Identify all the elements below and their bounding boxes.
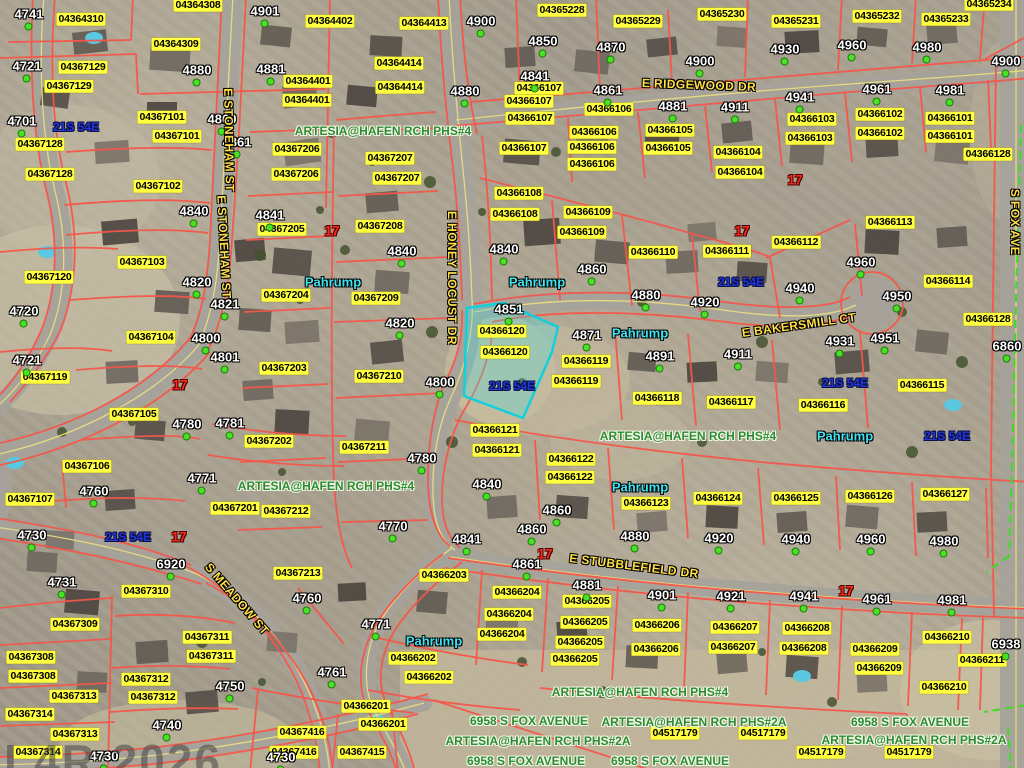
parcel-id-label[interactable]: 04366109: [557, 226, 606, 239]
parcel-id-label[interactable]: 04367211: [340, 441, 389, 454]
address-label: 4881: [659, 100, 688, 113]
address-label: 4950: [883, 290, 912, 303]
parcel-id-label[interactable]: 04367129: [44, 80, 93, 93]
address-label: 4840: [388, 245, 417, 258]
address-label: 6860: [993, 340, 1022, 353]
address-label: 4870: [597, 41, 626, 54]
address-label: 4980: [930, 535, 959, 548]
parcel-id-label[interactable]: 04366121: [470, 424, 519, 437]
parcel-id-label[interactable]: 04367102: [133, 180, 182, 193]
address-label: 4780: [408, 452, 437, 465]
address-label: 4781: [216, 417, 245, 430]
address-label: 4720: [10, 305, 39, 318]
address-label: 4880: [451, 85, 480, 98]
section-number-label: 17: [734, 224, 749, 238]
parcel-id-label[interactable]: 04366201: [341, 700, 390, 713]
address-label: 4760: [80, 485, 109, 498]
section-number-label: 17: [537, 547, 552, 561]
address-label: 4961: [863, 593, 892, 606]
address-label: 4860: [518, 523, 547, 536]
subdivision-label: 6958 S FOX AVENUE: [851, 716, 969, 728]
address-label: 4900: [467, 15, 496, 28]
parcel-id-label[interactable]: 04367128: [25, 168, 74, 181]
parcel-id-label[interactable]: 04366206: [631, 643, 680, 656]
parcel-id-label[interactable]: 04367416: [277, 726, 326, 739]
parcel-id-label[interactable]: 04367309: [50, 618, 99, 631]
address-label: 4820: [183, 276, 212, 289]
address-label: 4721: [13, 60, 42, 73]
address-label: 4750: [216, 680, 245, 693]
parcel-id-label[interactable]: 04365233: [921, 13, 970, 26]
address-label: 4730: [18, 529, 47, 542]
parcel-id-label[interactable]: 04364310: [56, 13, 105, 26]
address-label: 4920: [691, 296, 720, 309]
township-range-label: 21S 54E: [924, 430, 970, 442]
address-label: 4771: [362, 618, 391, 631]
parcel-id-label[interactable]: 04366107: [504, 95, 553, 108]
address-label: 4760: [293, 592, 322, 605]
parcel-id-label[interactable]: 04517179: [884, 746, 933, 759]
address-label: 4880: [621, 530, 650, 543]
address-label: 4911: [724, 348, 752, 361]
subdivision-label: ARTESIA@HAFEN RCH PHS#4: [600, 430, 776, 442]
address-label: 4920: [705, 532, 734, 545]
parcel-id-label[interactable]: 04367208: [355, 220, 404, 233]
address-label: 4981: [936, 84, 965, 97]
address-label: 4800: [426, 376, 455, 389]
parcel-id-label[interactable]: 04365231: [771, 15, 820, 28]
street-name-label: E STONEHAM ST: [222, 88, 236, 192]
parcel-id-label[interactable]: 04364401: [283, 75, 332, 88]
parcel-id-label[interactable]: 04365232: [852, 10, 901, 23]
parcel-id-label[interactable]: 04366124: [693, 492, 742, 505]
address-label: 4881: [257, 63, 286, 76]
parcel-id-label[interactable]: 04366202: [388, 652, 437, 665]
parcel-id-label[interactable]: 04366101: [925, 130, 974, 143]
section-number-label: 17: [171, 530, 186, 544]
address-label: 4840: [490, 243, 519, 256]
parcel-id-label[interactable]: 04367203: [259, 362, 308, 375]
subdivision-label: ARTESIA@HAFEN RCH PHS#4: [295, 125, 471, 137]
address-label: 4930: [771, 43, 800, 56]
parcel-id-label[interactable]: 04517179: [796, 746, 845, 759]
parcel-id-label[interactable]: 04366123: [621, 497, 670, 510]
parcel-id-label[interactable]: 04366106: [567, 141, 616, 154]
parcel-id-label[interactable]: 04364308: [173, 0, 222, 11]
address-label: 4771: [188, 472, 217, 485]
parcel-id-label[interactable]: 04366208: [782, 622, 831, 635]
address-label: 4940: [782, 533, 811, 546]
city-label: Pahrump: [509, 276, 565, 289]
parcel-id-label[interactable]: 04366203: [419, 569, 468, 582]
parcel-id-label[interactable]: 04366105: [645, 124, 694, 137]
parcel-id-label[interactable]: 04366114: [924, 275, 973, 288]
parcel-id-label[interactable]: 04366116: [799, 399, 848, 412]
street-name-label: E RIDGEWOOD DR: [642, 77, 757, 93]
parcel-id-label[interactable]: 04364309: [151, 38, 200, 51]
parcel-id-label[interactable]: 04366108: [490, 208, 539, 221]
map-canvas[interactable]: 0436430804364310043644020436430904367129…: [0, 0, 1024, 768]
township-range-label: 21S 54E: [822, 377, 868, 389]
parcel-id-label[interactable]: 04366127: [920, 488, 969, 501]
subdivision-label: 6958 S FOX AVENUE: [467, 755, 585, 767]
address-label: 4921: [717, 590, 746, 603]
parcel-id-label[interactable]: 04366209: [850, 643, 899, 656]
section-number-label: 17: [838, 584, 853, 598]
township-range-label: 21S 54E: [105, 531, 151, 543]
parcel-id-label[interactable]: 04367103: [117, 256, 166, 269]
parcel-id-label[interactable]: 04366206: [632, 619, 681, 632]
parcel-id-label[interactable]: 04366128: [963, 313, 1012, 326]
parcel-id-label[interactable]: 04366121: [472, 444, 521, 457]
city-label: Pahrump: [817, 430, 873, 443]
address-label: 4820: [386, 317, 415, 330]
address-label: 4900: [992, 55, 1021, 68]
subdivision-label: 6958 S FOX AVENUE: [470, 715, 588, 727]
address-label: 4850: [529, 35, 558, 48]
address-label: 4860: [578, 263, 607, 276]
parcel-id-label[interactable]: 04366119: [562, 355, 611, 368]
parcel-id-label[interactable]: 04364414: [374, 57, 423, 70]
subdivision-label: ARTESIA@HAFEN RCH PHS#4: [238, 480, 414, 492]
address-label: 4891: [646, 350, 675, 363]
parcel-id-label[interactable]: 04366112: [772, 236, 821, 249]
address-label: 4881: [573, 579, 602, 592]
parcel-id-label[interactable]: 04367128: [15, 138, 64, 151]
parcel-id-label[interactable]: 04364414: [375, 81, 424, 94]
address-label: 4851: [495, 303, 524, 316]
parcel-id-label[interactable]: 04367129: [58, 61, 107, 74]
parcel-id-label[interactable]: 04367120: [24, 271, 73, 284]
parcel-id-label[interactable]: 04367105: [109, 408, 158, 421]
address-label: 4740: [153, 719, 182, 732]
parcel-id-label[interactable]: 04366113: [866, 216, 915, 229]
parcel-id-label[interactable]: 04367312: [121, 673, 170, 686]
address-label: 4911: [721, 101, 749, 114]
address-label: 4861: [594, 84, 623, 97]
parcel-id-label[interactable]: 04366105: [643, 142, 692, 155]
address-label: 4731: [48, 576, 77, 589]
parcel-id-label[interactable]: 04367207: [365, 152, 414, 165]
parcel-id-label[interactable]: 04366122: [545, 471, 594, 484]
parcel-id-label[interactable]: 04365228: [537, 4, 586, 17]
parcel-id-label[interactable]: 04366122: [546, 453, 595, 466]
parcel-id-label[interactable]: 04366115: [898, 379, 947, 392]
address-label: 4860: [543, 504, 572, 517]
address-label: 4841: [256, 209, 285, 222]
section-number-label: 17: [172, 378, 187, 392]
address-label: 4761: [318, 666, 347, 679]
parcel-id-label[interactable]: 04366126: [845, 490, 894, 503]
parcel-id-label[interactable]: 04366125: [771, 492, 820, 505]
subdivision-label: ARTESIA@HAFEN RCH PHS#2A: [445, 735, 630, 747]
city-label: Pahrump: [612, 481, 668, 494]
parcel-id-label[interactable]: 04366107: [514, 82, 563, 95]
parcel-id-label[interactable]: 04366102: [855, 108, 904, 121]
parcel-id-label[interactable]: 04366204: [492, 586, 541, 599]
parcel-id-label[interactable]: 04366210: [922, 631, 971, 644]
parcel-id-label[interactable]: 04366205: [550, 653, 599, 666]
parcel-id-label[interactable]: 04367205: [257, 223, 306, 236]
subdivision-label: ARTESIA@HAFEN RCH PHS#2A: [821, 734, 1006, 746]
address-label: 4800: [192, 332, 221, 345]
subdivision-label: ARTESIA@HAFEN RCH PHS#4: [552, 686, 728, 698]
address-label: 4951: [871, 332, 900, 345]
parcel-id-label[interactable]: 04366117: [707, 396, 756, 409]
parcel-id-label[interactable]: 04366119: [552, 375, 601, 388]
parcel-id-label[interactable]: 04366118: [633, 392, 682, 405]
parcel-id-label[interactable]: 04367207: [372, 172, 421, 185]
parcel-id-label[interactable]: 04367210: [354, 370, 403, 383]
parcel-id-label[interactable]: 04367313: [49, 690, 98, 703]
street-name-label: E HONEY LOCUST DR: [446, 211, 458, 345]
address-label: 4801: [211, 351, 240, 364]
township-range-label: 21S 54E: [489, 380, 535, 392]
address-label: 4880: [632, 289, 661, 302]
address-label: 4931: [826, 335, 855, 348]
address-label: 4901: [251, 5, 280, 18]
address-label: 4780: [173, 418, 202, 431]
city-label: Pahrump: [406, 635, 462, 648]
parcel-id-label[interactable]: 04366208: [779, 642, 828, 655]
parcel-id-label[interactable]: 04366110: [629, 246, 678, 259]
parcel-id-label[interactable]: 04367106: [62, 460, 111, 473]
section-number-label: 17: [324, 224, 339, 238]
parcel-id-label[interactable]: 04366120: [480, 346, 529, 359]
parcel-id-label[interactable]: 04366207: [708, 641, 757, 654]
address-label: 4871: [573, 329, 602, 342]
parcel-id-label[interactable]: 04367311: [187, 650, 236, 663]
parcel-id-label[interactable]: 04366202: [404, 671, 453, 684]
watermark: L4R 2026: [4, 738, 222, 768]
parcel-id-label[interactable]: 04366111: [703, 245, 751, 258]
address-label: 4940: [786, 282, 815, 295]
parcel-id-label[interactable]: 04366102: [855, 127, 904, 140]
parcel-id-label[interactable]: 04366103: [785, 132, 834, 145]
parcel-id-label[interactable]: 04366128: [963, 148, 1012, 161]
parcel-id-label[interactable]: 04367204: [261, 289, 310, 302]
parcel-id-label[interactable]: 04367310: [121, 585, 170, 598]
parcel-id-label[interactable]: 04367201: [210, 502, 259, 515]
township-range-label: 21S 54E: [53, 121, 99, 133]
parcel-id-label[interactable]: 04367212: [261, 505, 310, 518]
parcel-id-label[interactable]: 04367308: [6, 651, 55, 664]
address-label: 4981: [938, 594, 967, 607]
parcel-id-label[interactable]: 04367101: [137, 111, 186, 124]
parcel-id-label[interactable]: 04367104: [126, 331, 175, 344]
address-label: 4961: [863, 83, 892, 96]
subdivision-label: ARTESIA@HAFEN RCH PHS#2A: [601, 716, 786, 728]
parcel-id-label[interactable]: 04364413: [399, 17, 448, 30]
city-label: Pahrump: [305, 276, 361, 289]
street-name-label: S FOX AVE: [1009, 189, 1021, 255]
parcel-id-label[interactable]: 04366109: [563, 206, 612, 219]
address-label: 4821: [211, 298, 240, 311]
parcel-id-label[interactable]: 04366207: [710, 621, 759, 634]
parcel-id-label[interactable]: 04366201: [358, 718, 407, 731]
address-label: 4701: [8, 115, 37, 128]
address-label: 4980: [913, 41, 942, 54]
parcel-id-label[interactable]: 04366209: [854, 662, 903, 675]
parcel-id-label[interactable]: 04366211: [958, 654, 1007, 667]
parcel-id-label[interactable]: 04364401: [282, 94, 331, 107]
address-label: 4880: [183, 64, 212, 77]
address-label: 4960: [847, 256, 876, 269]
parcel-id-label[interactable]: 04366106: [567, 158, 616, 171]
parcel-id-label[interactable]: 04367206: [272, 143, 321, 156]
parcel-id-label[interactable]: 04366108: [494, 187, 543, 200]
address-label: 4941: [790, 590, 819, 603]
parcel-id-label[interactable]: 04366107: [505, 112, 554, 125]
address-label: 4730: [267, 751, 296, 764]
parcel-id-label[interactable]: 04366120: [477, 325, 526, 338]
address-label: 6938: [992, 638, 1021, 651]
address-label: 4841: [521, 70, 550, 83]
address-label: 4840: [473, 478, 502, 491]
parcel-id-label[interactable]: 04366103: [787, 113, 836, 126]
address-label: 4841: [453, 533, 482, 546]
township-range-label: 21S 54E: [718, 276, 764, 288]
parcel-id-label[interactable]: 04366101: [925, 112, 974, 125]
parcel-id-label[interactable]: 04367101: [152, 130, 201, 143]
parcel-id-label[interactable]: 04367314: [5, 708, 54, 721]
section-number-label: 17: [787, 173, 802, 187]
parcel-id-label[interactable]: 04364402: [305, 15, 354, 28]
parcel-id-label[interactable]: 04366205: [560, 616, 609, 629]
city-label: Pahrump: [612, 327, 668, 340]
address-label: 4741: [15, 8, 44, 21]
parcel-id-label[interactable]: 04367107: [5, 493, 54, 506]
address-label: 4900: [686, 55, 715, 68]
parcel-id-label[interactable]: 04366104: [713, 146, 762, 159]
address-label: 4721: [13, 354, 42, 367]
parcel-id-label[interactable]: 04366204: [477, 628, 526, 641]
address-label: 4840: [180, 205, 209, 218]
parcel-id-label[interactable]: 04367213: [273, 567, 322, 580]
parcel-id-label[interactable]: 04365230: [697, 8, 746, 21]
subdivision-label: 6958 S FOX AVENUE: [611, 755, 729, 767]
parcel-id-label[interactable]: 04365229: [613, 15, 662, 28]
parcel-id-label[interactable]: 04365234: [964, 0, 1013, 10]
address-label: 4901: [648, 589, 677, 602]
address-label: 4960: [838, 39, 867, 52]
parcel-id-label[interactable]: 04366104: [715, 166, 764, 179]
parcel-id-label[interactable]: 04367311: [183, 631, 232, 644]
parcel-id-label[interactable]: 04367415: [337, 746, 386, 759]
parcel-id-label[interactable]: 04367308: [8, 670, 57, 683]
parcel-id-label[interactable]: 04366107: [499, 142, 548, 155]
address-label: 4960: [857, 533, 886, 546]
parcel-id-label[interactable]: 04367206: [271, 168, 320, 181]
parcel-id-label[interactable]: 04367202: [244, 435, 293, 448]
parcel-id-label[interactable]: 04367209: [351, 292, 400, 305]
parcel-id-label[interactable]: 04366106: [569, 126, 618, 139]
parcel-id-label[interactable]: 04366205: [555, 636, 604, 649]
parcel-id-label[interactable]: 04366204: [484, 608, 533, 621]
parcel-id-label[interactable]: 04366210: [919, 681, 968, 694]
address-label: 4770: [379, 520, 408, 533]
parcel-id-label[interactable]: 04367312: [128, 691, 177, 704]
address-label: 4941: [786, 91, 815, 104]
address-label: 6920: [157, 558, 186, 571]
